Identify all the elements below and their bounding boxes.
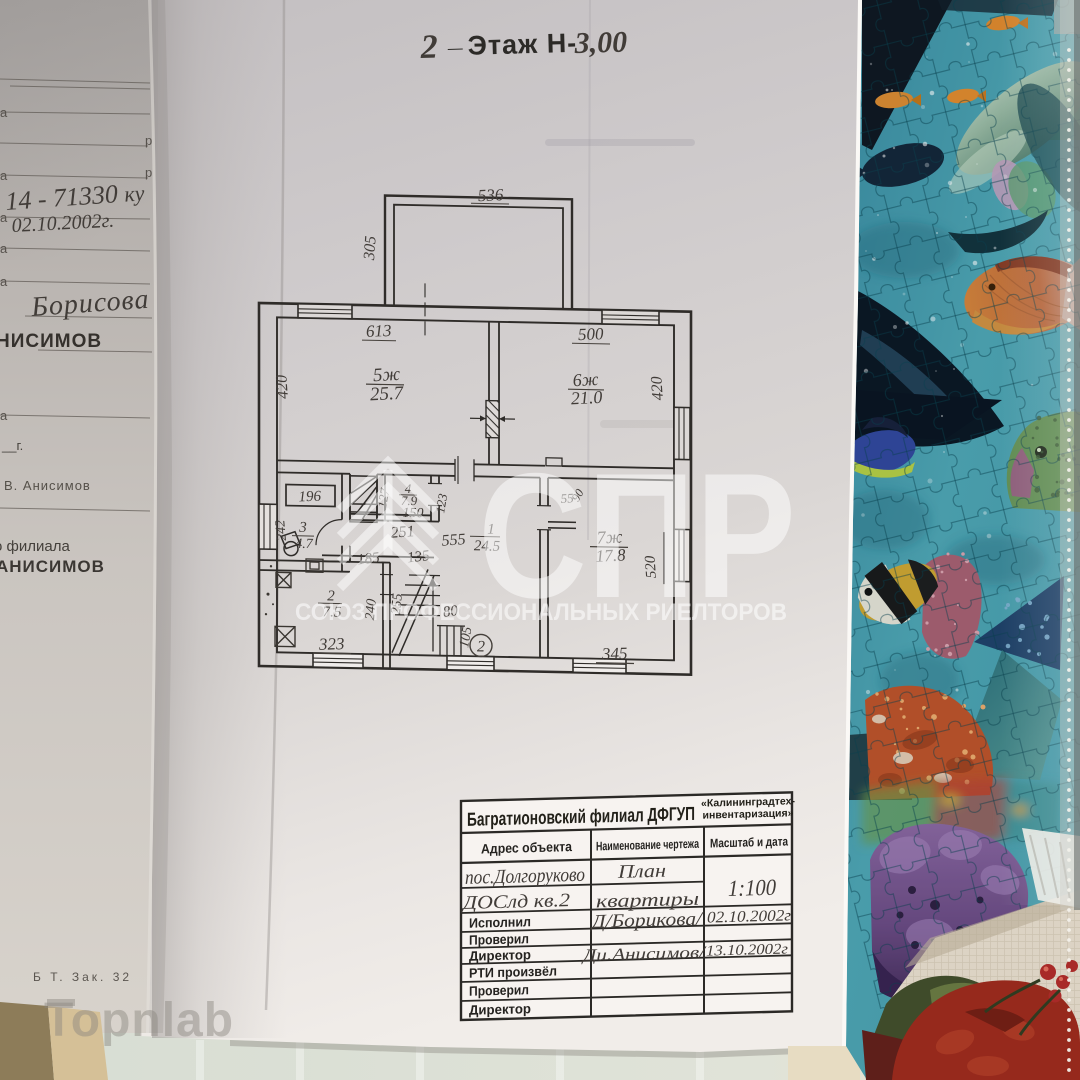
svg-text:2: 2	[419, 29, 438, 66]
svg-text:Директор: Директор	[469, 1001, 531, 1018]
svg-text:420: 420	[648, 376, 667, 401]
svg-text:p: p	[145, 165, 152, 180]
svg-text:Директор: Директор	[469, 947, 531, 964]
svg-text:В. Анисимов: В. Анисимов	[4, 478, 91, 493]
svg-text:25.7: 25.7	[369, 383, 405, 406]
svg-text:a: a	[0, 168, 8, 183]
svg-text:a: a	[0, 241, 8, 256]
svg-text:a: a	[0, 408, 8, 423]
svg-text:Наименование чертежа: Наименование чертежа	[596, 837, 700, 854]
svg-text:__г.: __г.	[1, 438, 23, 453]
svg-text:p: p	[145, 133, 152, 148]
svg-text:Topnlab: Topnlab	[44, 994, 234, 1047]
svg-text:420: 420	[273, 374, 292, 399]
svg-text:РТИ произвёл: РТИ произвёл	[469, 963, 557, 980]
svg-text:4.7: 4.7	[295, 537, 313, 552]
svg-text:План: План	[617, 861, 666, 883]
svg-text:02.10.2002г: 02.10.2002г	[707, 907, 791, 926]
svg-text:Д/Борикова/: Д/Борикова/	[590, 909, 704, 933]
svg-text:АНИСИМОВ: АНИСИМОВ	[0, 557, 105, 576]
svg-text:242: 242	[273, 519, 290, 541]
svg-text:196: 196	[298, 489, 322, 506]
svg-text:613: 613	[365, 321, 391, 341]
svg-text:500: 500	[577, 324, 604, 344]
svg-text:1:100: 1:100	[728, 875, 776, 901]
svg-text:Масштаб и дата: Масштаб и дата	[710, 834, 789, 850]
svg-text:323: 323	[317, 634, 344, 654]
svg-text:Исполнил: Исполнил	[469, 914, 531, 931]
svg-text:Б Т. Зак. 32: Б Т. Зак. 32	[33, 970, 132, 984]
svg-text:a: a	[0, 274, 8, 289]
svg-text:345: 345	[600, 644, 627, 664]
svg-text:СОЮЗ ПРОФЕССИОНАЛЬНЫХ РИЕЛТОРО: СОЮЗ ПРОФЕССИОНАЛЬНЫХ РИЕЛТОРОВ	[295, 599, 787, 626]
svg-text:3,00: 3,00	[573, 26, 627, 60]
svg-text:555: 555	[441, 531, 466, 550]
svg-text:Проверил: Проверил	[469, 982, 529, 999]
svg-text:a: a	[0, 105, 8, 120]
svg-text:2: 2	[477, 638, 485, 655]
svg-text:536: 536	[477, 185, 504, 205]
svg-text:о филиала: о филиала	[0, 538, 70, 555]
svg-text:инвентаризация»: инвентаризация»	[703, 807, 794, 821]
svg-text:305: 305	[361, 235, 380, 261]
svg-text:3: 3	[298, 520, 306, 536]
svg-text:пос.Долгоруково: пос.Долгоруково	[465, 864, 585, 889]
svg-text:Этаж Н-: Этаж Н-	[467, 28, 577, 61]
svg-text:Адрес объекта: Адрес объекта	[481, 839, 572, 856]
svg-text:ДОСлд кв.2: ДОСлд кв.2	[461, 890, 571, 914]
svg-text:—: —	[447, 40, 462, 57]
svg-text:Ди.Анисимов/: Ди.Анисимов/	[581, 943, 708, 965]
svg-text:13.10.2002г: 13.10.2002г	[706, 941, 788, 959]
svg-text:Проверил: Проверил	[469, 931, 529, 948]
svg-text:НИСИМОВ: НИСИМОВ	[0, 331, 102, 352]
